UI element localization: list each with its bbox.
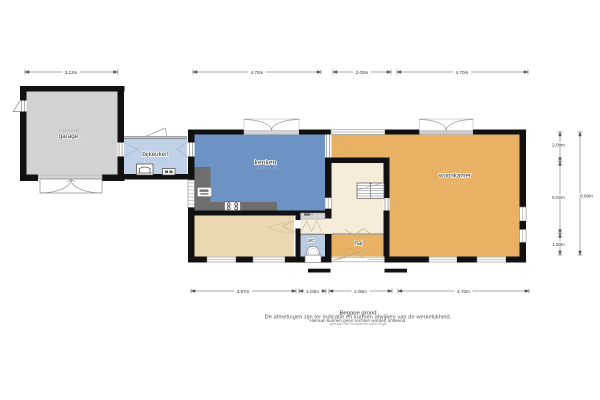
svg-text:5.02m: 5.02m (552, 195, 565, 200)
svg-text:1.50m: 1.50m (552, 242, 565, 247)
svg-text:2.00m: 2.00m (354, 289, 367, 294)
svg-text:8.53 x 4.70: 8.53 x 4.70 (445, 180, 466, 185)
svg-text:4.57 x 4.70: 4.57 x 4.70 (257, 166, 278, 171)
svg-text:gemaakt met floorplanner techn: gemaakt met floorplanner technologie (330, 322, 387, 326)
svg-text:4.70m: 4.70m (456, 70, 469, 75)
svg-text:1.03m: 1.03m (306, 289, 319, 294)
svg-text:3.15 x 1.85: 3.15 x 1.85 (146, 157, 167, 162)
svg-text:2.00m: 2.00m (356, 70, 369, 75)
svg-text:3.87m: 3.87m (237, 289, 250, 294)
svg-text:8.60m: 8.60m (580, 193, 593, 198)
svg-text:hal: hal (354, 240, 362, 247)
svg-text:3.12m: 3.12m (65, 70, 78, 75)
svg-text:2.08m: 2.08m (552, 142, 565, 147)
svg-text:4.70m: 4.70m (457, 289, 470, 294)
svg-text:wc: wc (308, 238, 315, 244)
svg-text:woonkamer: woonkamer (438, 173, 471, 180)
svg-text:garage: garage (59, 133, 79, 140)
svg-text:4.70m: 4.70m (251, 70, 264, 75)
